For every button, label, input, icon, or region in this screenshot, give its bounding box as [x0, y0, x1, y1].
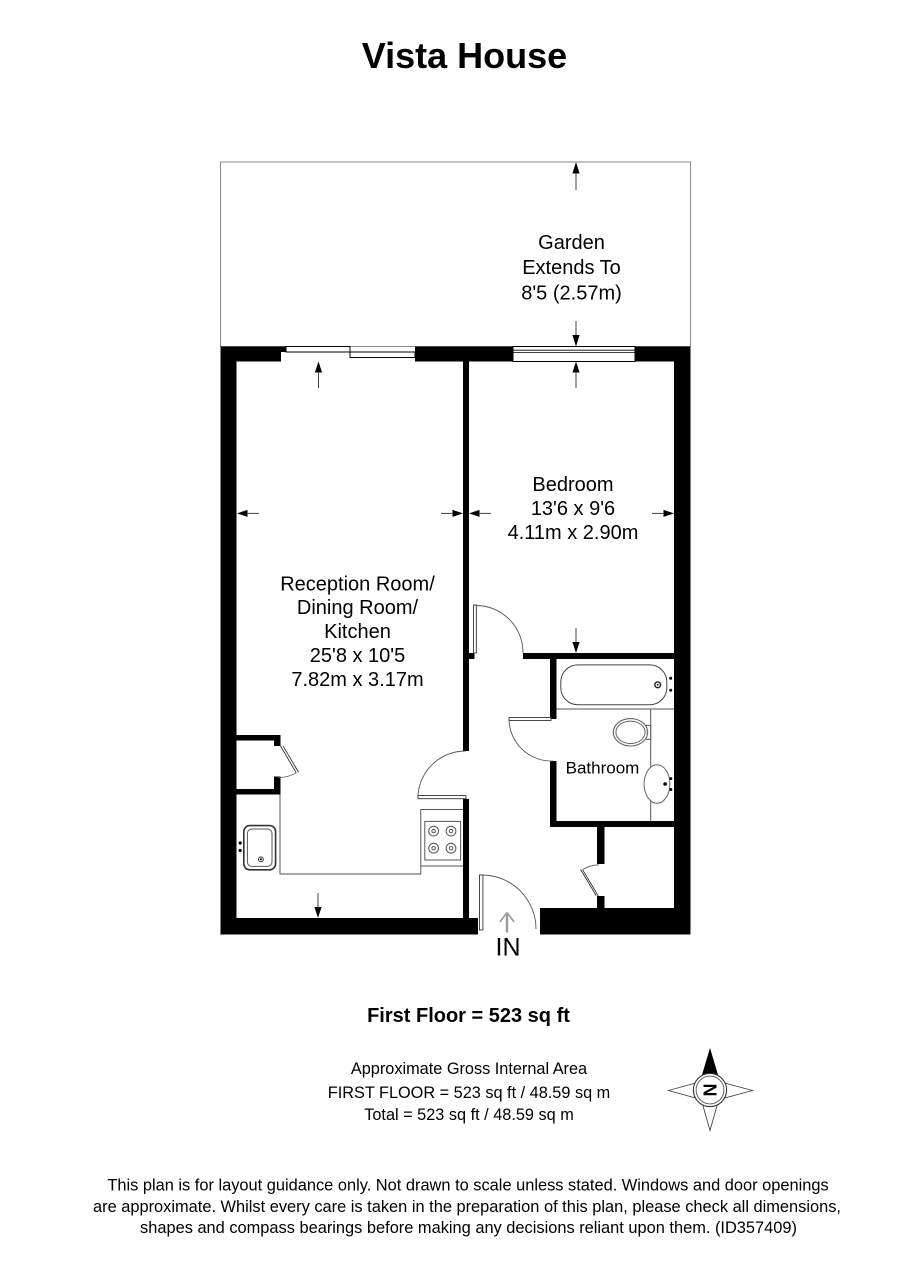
svg-text:Bathroom: Bathroom [566, 759, 640, 778]
svg-text:Approximate Gross Internal Are: Approximate Gross Internal Area [351, 1060, 588, 1078]
svg-text:This plan is for layout guidan: This plan is for layout guidance only. N… [107, 1177, 828, 1195]
svg-text:are approximate. Whilst every: are approximate. Whilst every care is ta… [93, 1198, 841, 1216]
svg-text:FIRST FLOOR = 523 sq ft / 48.5: FIRST FLOOR = 523 sq ft / 48.59 sq m [328, 1084, 610, 1102]
svg-text:Reception Room/: Reception Room/ [280, 574, 435, 596]
svg-text:Total = 523 sq ft / 48.59 sq m: Total = 523 sq ft / 48.59 sq m [364, 1106, 574, 1124]
svg-text:7.82m x 3.17m: 7.82m x 3.17m [291, 669, 423, 691]
svg-text:N: N [700, 1084, 720, 1097]
svg-text:Garden: Garden [538, 232, 605, 254]
svg-text:Dining Room/: Dining Room/ [297, 597, 419, 619]
svg-text:13'6 x 9'6: 13'6 x 9'6 [531, 498, 615, 520]
svg-text:Vista House: Vista House [362, 35, 567, 76]
svg-text:8'5 (2.57m): 8'5 (2.57m) [521, 283, 622, 305]
svg-text:IN: IN [496, 934, 521, 962]
svg-text:shapes and compass bearings be: shapes and compass bearings before makin… [140, 1219, 797, 1237]
svg-text:Extends To: Extends To [522, 257, 621, 279]
svg-text:Bedroom: Bedroom [532, 474, 613, 496]
svg-text:4.11m x 2.90m: 4.11m x 2.90m [508, 522, 639, 544]
svg-text:25'8 x 10'5: 25'8 x 10'5 [310, 645, 406, 667]
svg-text:Kitchen: Kitchen [324, 621, 391, 643]
svg-text:First Floor = 523 sq ft: First Floor = 523 sq ft [367, 1005, 570, 1027]
